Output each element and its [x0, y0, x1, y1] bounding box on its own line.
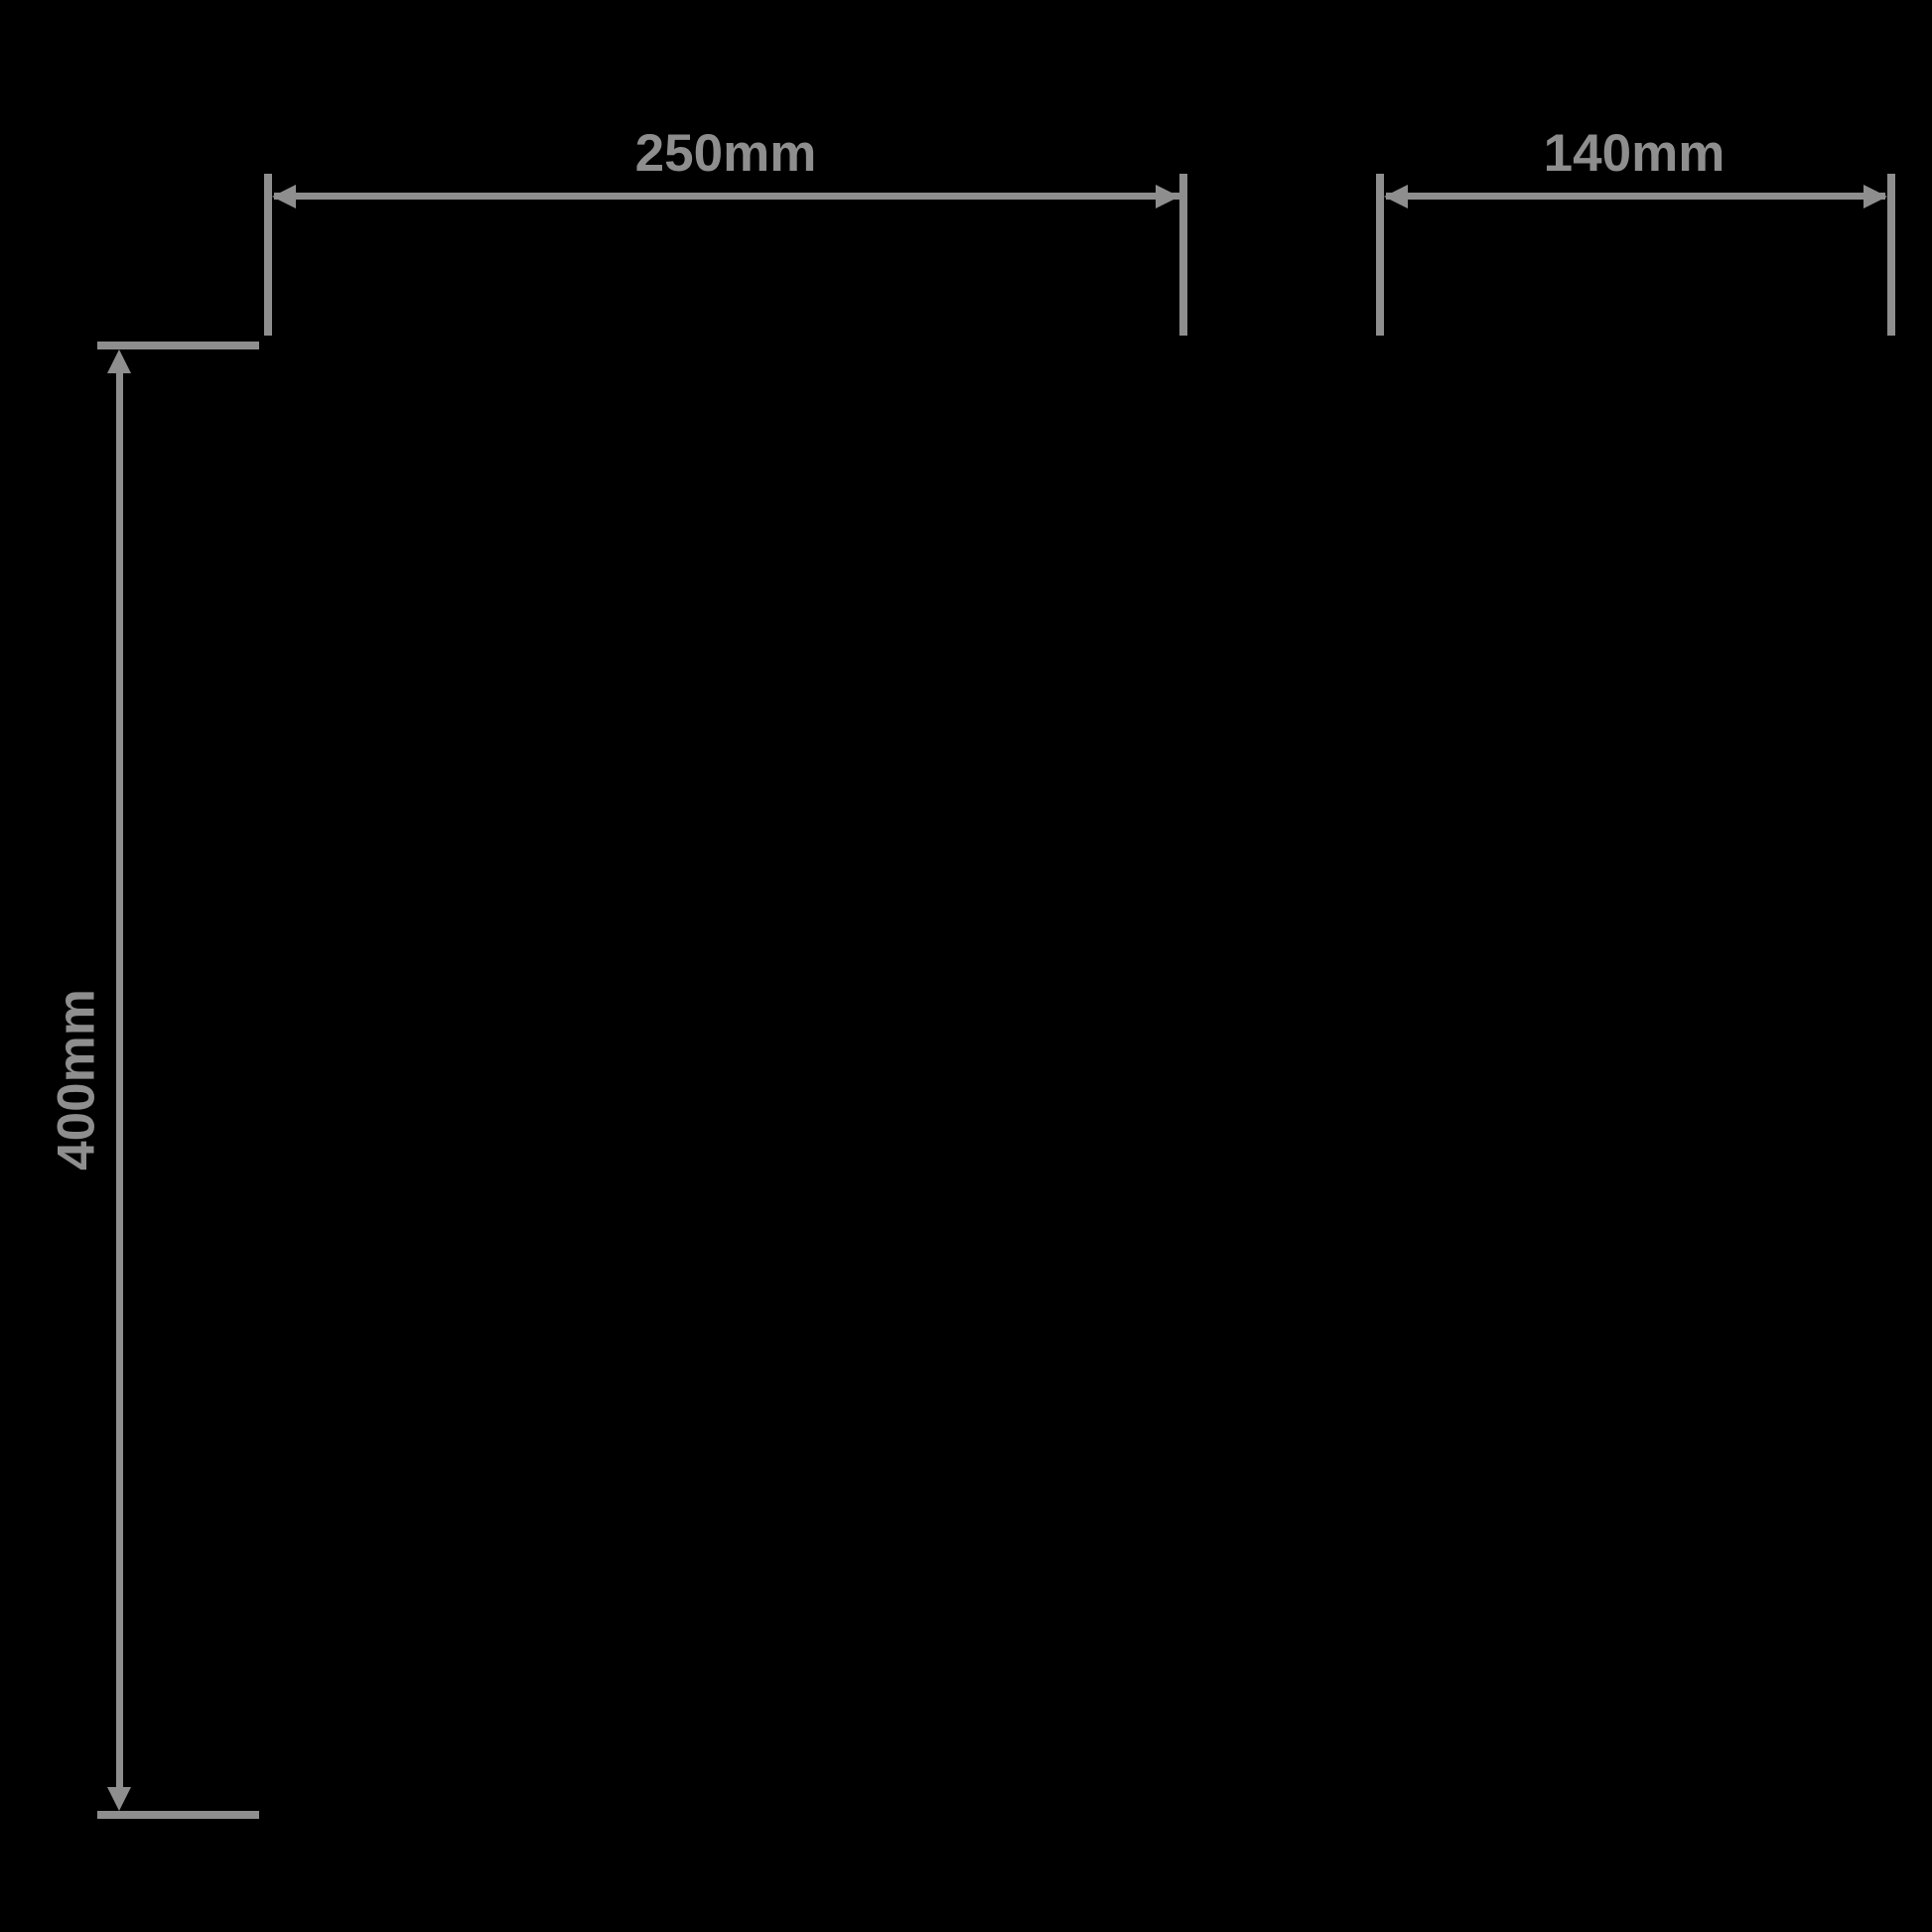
depth-arrowhead-left-icon	[1384, 185, 1408, 208]
width-dimension-right-tick	[1179, 174, 1187, 336]
height-arrowhead-up-icon	[107, 349, 131, 373]
depth-dimension-right-tick	[1887, 174, 1895, 336]
depth-arrowhead-right-icon	[1863, 185, 1887, 208]
height-dimension-label: 400mm	[51, 931, 103, 1229]
dimension-diagram: 250mm 140mm 400mm	[0, 0, 1932, 1932]
height-dimension-top-tick	[97, 342, 259, 349]
width-dimension-line	[274, 193, 1179, 200]
width-arrowhead-right-icon	[1156, 185, 1179, 208]
width-arrowhead-left-icon	[272, 185, 296, 208]
height-dimension-line	[116, 359, 123, 1801]
height-arrowhead-down-icon	[107, 1787, 131, 1811]
width-dimension-left-tick	[264, 174, 272, 336]
depth-dimension-label: 140mm	[1485, 127, 1783, 180]
depth-dimension-left-tick	[1376, 174, 1384, 336]
depth-dimension-line	[1386, 193, 1885, 200]
height-dimension-bottom-tick	[97, 1811, 259, 1819]
width-dimension-label: 250mm	[577, 127, 875, 180]
